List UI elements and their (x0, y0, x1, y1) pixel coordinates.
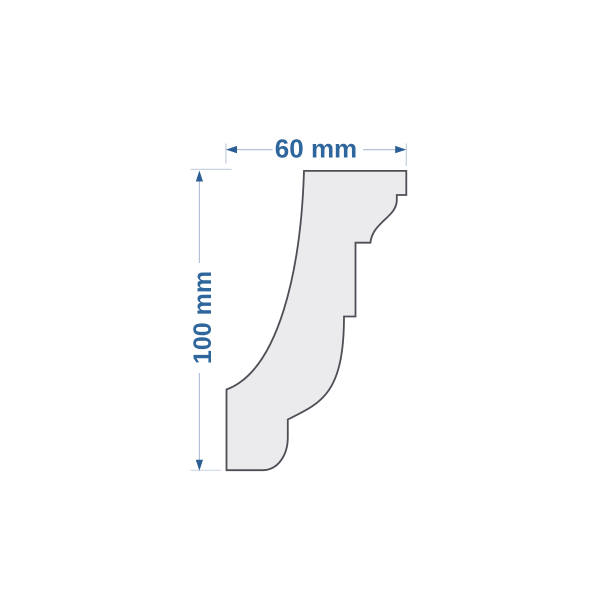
svg-text:100 mm: 100 mm (189, 271, 217, 364)
svg-text:60 mm: 60 mm (275, 134, 357, 164)
